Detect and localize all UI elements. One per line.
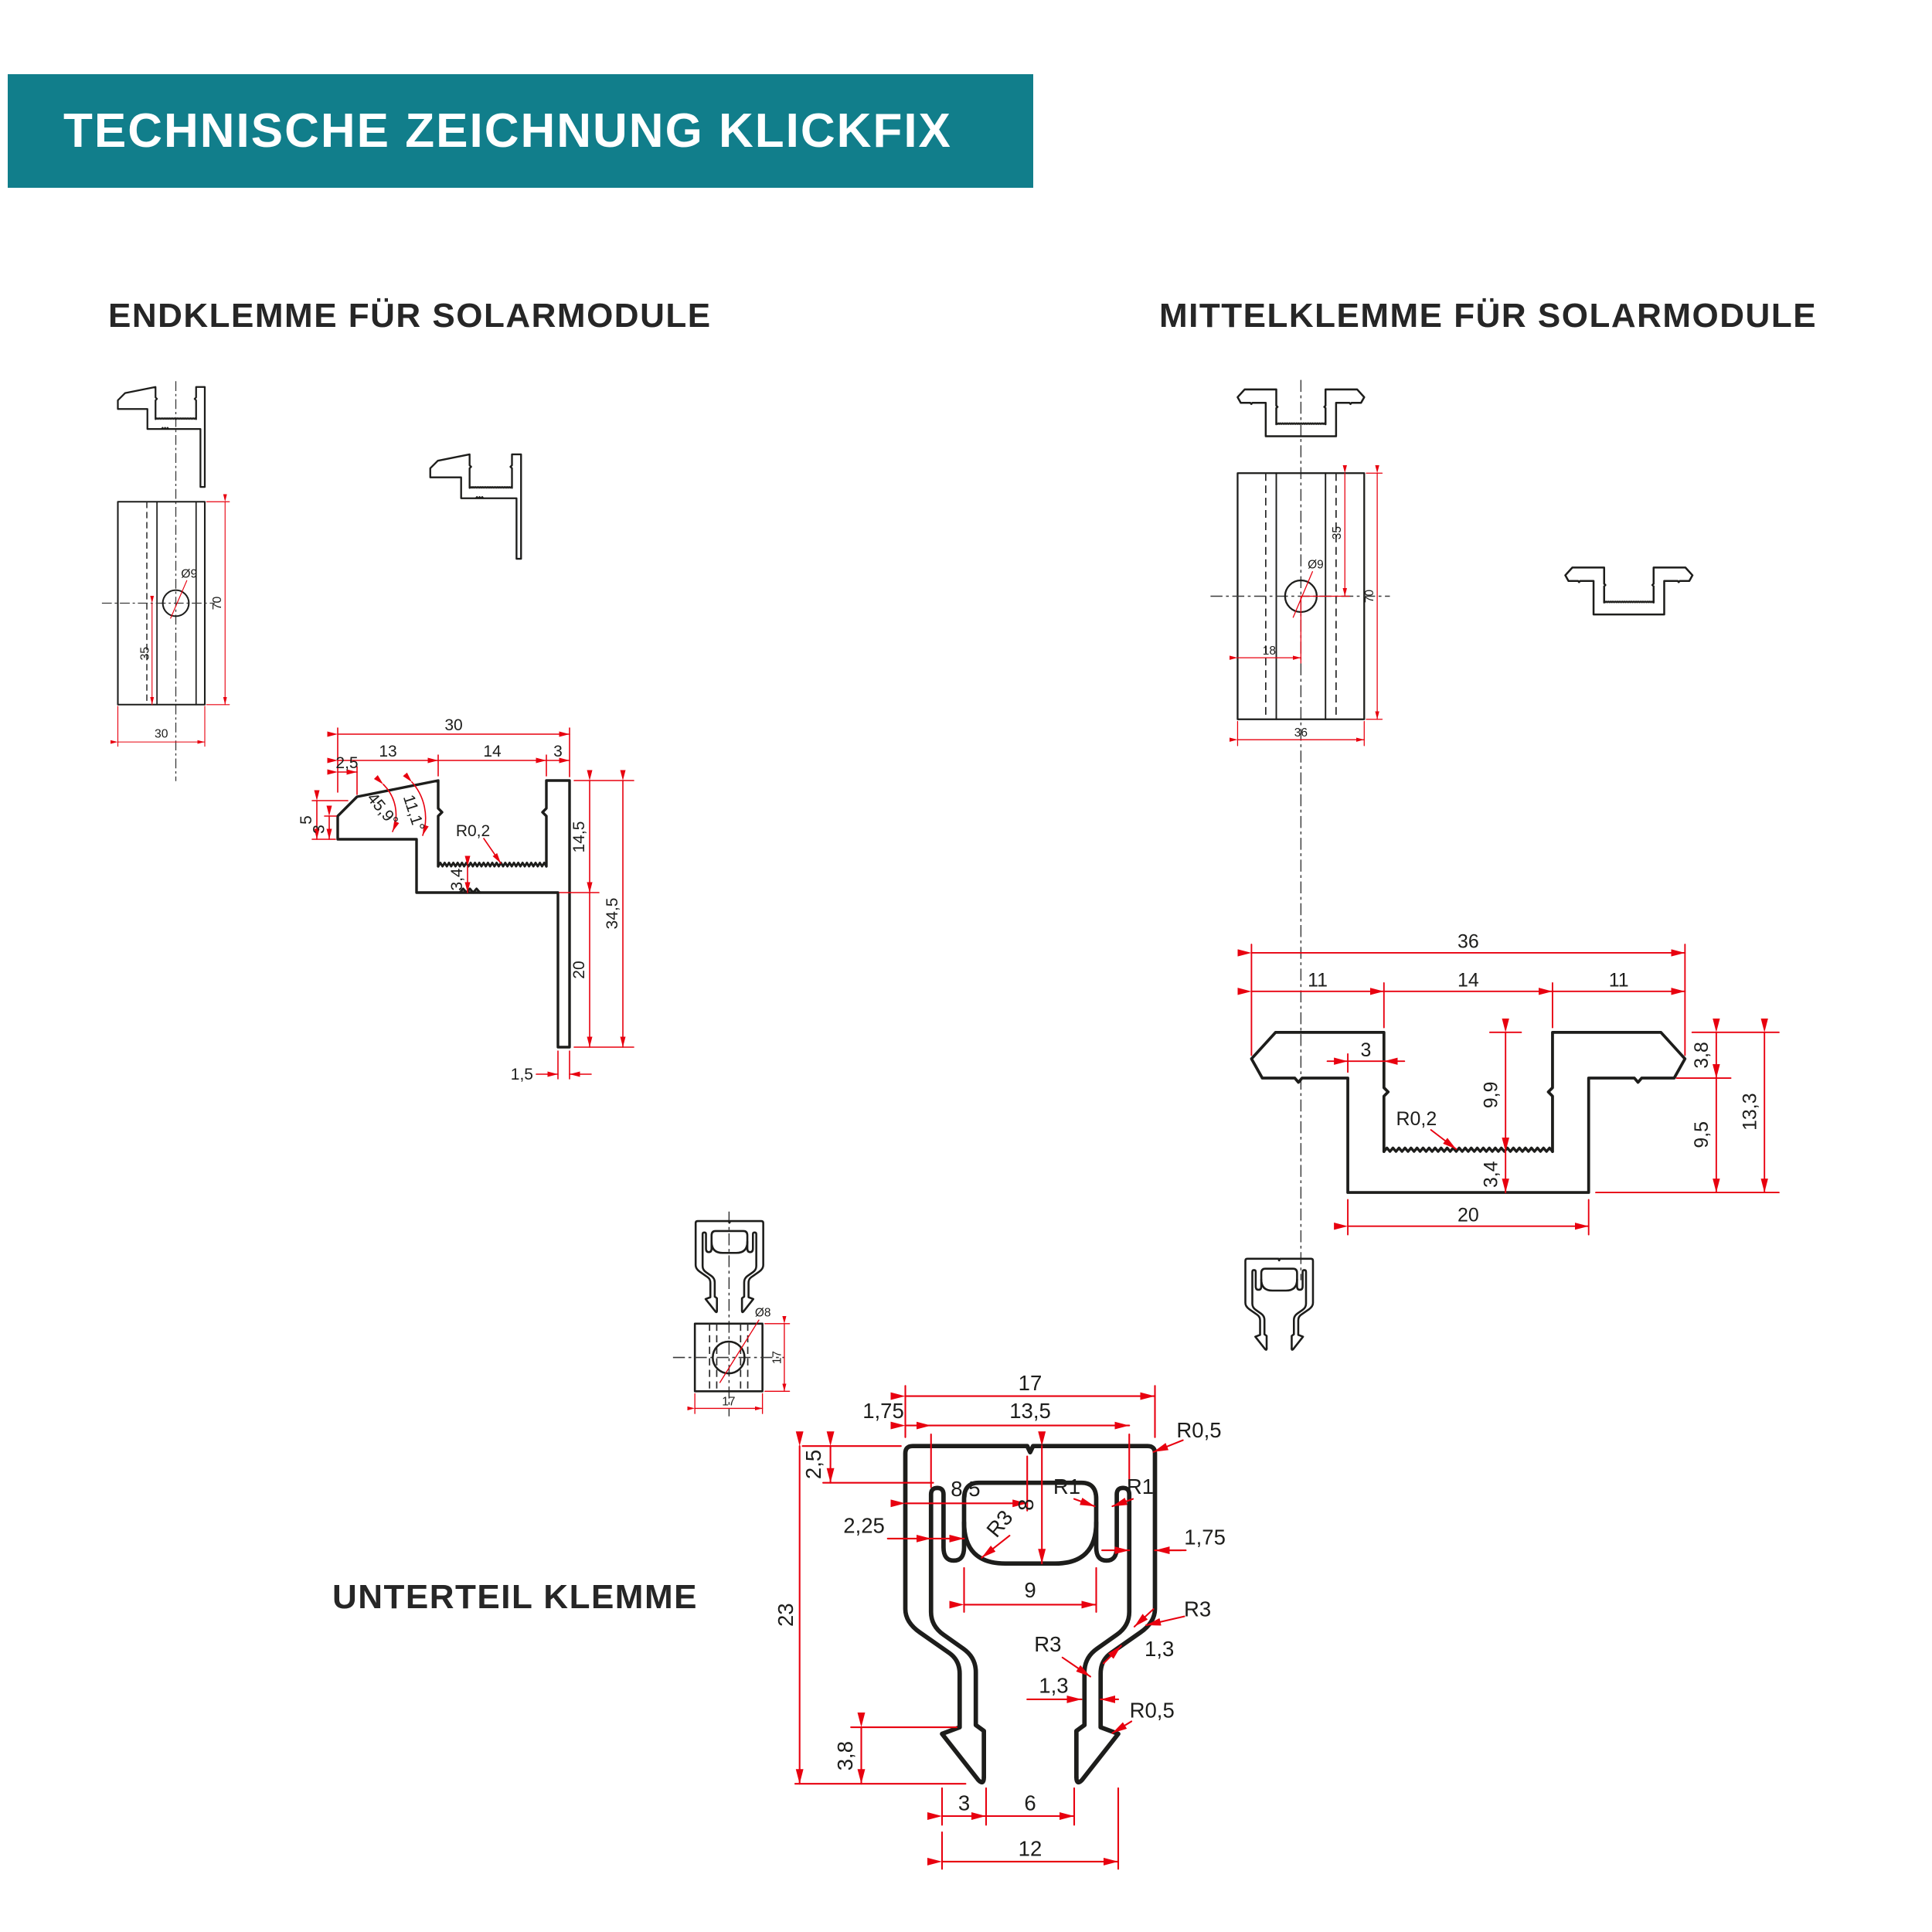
dim-total: 34,5 — [604, 898, 621, 930]
dim-r-foot: R0,5 — [1130, 1699, 1175, 1723]
dim-r1a: R1 — [1053, 1475, 1080, 1498]
dim-foot-w: 3 — [958, 1791, 970, 1815]
width-label: 30 — [155, 728, 168, 741]
endklemme-small-profile-view — [421, 447, 530, 568]
dim-body: 9,5 — [1691, 1121, 1713, 1148]
unterteil-title: UNTERTEIL KLEMME — [332, 1578, 698, 1617]
offset-label: 35 — [138, 647, 151, 661]
dim-foot-h: 3,8 — [833, 1741, 857, 1770]
dim-r: R0,2 — [1396, 1108, 1437, 1130]
dim-d1: 14,5 — [570, 821, 588, 853]
dim-r-top: R0,5 — [1176, 1418, 1221, 1442]
dim-w3: 11 — [1609, 970, 1629, 992]
dim-r-leg2: R3 — [1034, 1632, 1061, 1656]
offset-x-label: 18 — [1263, 645, 1276, 658]
dim-w1: 11 — [1308, 970, 1328, 992]
labels-unterteil-plan: 17 17 — [722, 1351, 784, 1408]
dim-slot-d: 8 — [1014, 1499, 1038, 1511]
labels-endklemme-cross: 30 13 14 3 2,5 5 3 45,9° 11,1° R0,2 3,4 … — [298, 716, 621, 1083]
dim-w: 17 — [1019, 1371, 1043, 1395]
dim-h: 23 — [774, 1603, 798, 1627]
dim-w1: 13 — [379, 743, 396, 760]
hole-label: Ø9 — [181, 568, 197, 581]
header-banner: TECHNISCHE ZEICHNUNG KLICKFIX — [8, 74, 1033, 188]
dim-floor: 3,4 — [1480, 1161, 1502, 1188]
serration — [438, 863, 546, 867]
dim-w: 36 — [1458, 931, 1479, 953]
dim-leg-t2: 1,3 — [1039, 1673, 1068, 1697]
dim-w2: 14 — [1458, 970, 1479, 992]
dims-unterteil-cross — [795, 1386, 1185, 1869]
width-label: 36 — [1294, 726, 1308, 740]
page-title: TECHNISCHE ZEICHNUNG KLICKFIX — [63, 104, 952, 158]
serration — [470, 487, 512, 488]
dim-r-slot: R3 — [981, 1505, 1017, 1542]
dim-depth: 9,9 — [1480, 1082, 1502, 1109]
mittelklemme-small-profile-view — [1561, 558, 1697, 624]
endklemme-plan-view — [102, 502, 215, 705]
endklemme-title: ENDKLEMME FÜR SOLARMODULE — [108, 297, 712, 335]
dim-leg: 20 — [570, 961, 588, 978]
dim-slot-w: 9 — [1024, 1578, 1036, 1602]
page: { "header": { "title": "TECHNISCHE ZEICH… — [0, 0, 1932, 1932]
dim-chamfer: 2,5 — [335, 754, 358, 772]
dim-h: 13,3 — [1739, 1093, 1760, 1131]
unterteil-cross-profile — [906, 1446, 1155, 1782]
dim-gap: 6 — [1024, 1791, 1036, 1815]
dim-feet-w: 12 — [1019, 1836, 1043, 1860]
dim-r-leg: R3 — [1184, 1597, 1211, 1621]
dim-w2: 14 — [483, 743, 502, 760]
dim-lip-h: 5 — [298, 815, 315, 825]
dim-base: 20 — [1458, 1204, 1479, 1226]
dim-wall: 2,25 — [843, 1513, 885, 1537]
height-label: 17 — [770, 1351, 784, 1364]
dim-floor: 3,4 — [448, 868, 466, 891]
dim-top-in: 13,5 — [1009, 1399, 1051, 1423]
dim-r: R0,2 — [456, 822, 490, 840]
width-label: 17 — [722, 1395, 735, 1408]
height-label: 70 — [1363, 590, 1376, 603]
hole-label: Ø8 — [755, 1307, 771, 1320]
dim-wall-r: 1,75 — [1184, 1526, 1226, 1549]
unterteil-cross-section: 17 1,75 13,5 R0,5 2,5 8,5 R1 R1 8 2,25 R… — [781, 1368, 1250, 1912]
dim-web: 2,5 — [801, 1450, 825, 1479]
dim-notch: 3 — [1360, 1039, 1371, 1061]
dim-lip-t: 3 — [311, 825, 328, 834]
dim-ang2: 11,1° — [400, 793, 428, 833]
endklemme-cross-section: 30 13 14 3 2,5 5 3 45,9° 11,1° R0,2 3,4 … — [278, 688, 726, 1097]
mittelklemme-title: MITTELKLEMME FÜR SOLARMODULE — [1159, 297, 1817, 335]
dim-leg-t1: 1,3 — [1145, 1637, 1174, 1661]
dim-wing: 3,8 — [1691, 1042, 1713, 1069]
unterteil-small-profile-view — [1235, 1250, 1324, 1359]
dim-w3: 3 — [553, 743, 563, 760]
dims-endklemme-cross — [312, 728, 634, 1079]
dim-half: 8,5 — [951, 1477, 980, 1501]
dim-hole: Ø9 — [1293, 559, 1323, 617]
offset-label: 35 — [1331, 526, 1344, 539]
endklemme-side-profile — [118, 387, 206, 487]
hole-label: Ø9 — [1308, 559, 1324, 572]
serration — [1277, 423, 1326, 424]
serration — [1384, 1148, 1553, 1151]
dim-edge: 1,75 — [862, 1399, 904, 1423]
endklemme-cross-profile — [338, 781, 570, 1047]
dim-width-30: 30 — [118, 706, 206, 747]
mittelklemme-cross-profile — [1251, 1032, 1685, 1192]
dim-offset-35: 35 — [138, 604, 151, 705]
height-label: 70 — [211, 597, 224, 611]
serration — [155, 418, 196, 420]
dim-leg-t: 1,5 — [511, 1066, 533, 1083]
dim-w: 30 — [444, 716, 462, 734]
dim-r1b: R1 — [1127, 1475, 1154, 1498]
serration — [1604, 601, 1654, 603]
